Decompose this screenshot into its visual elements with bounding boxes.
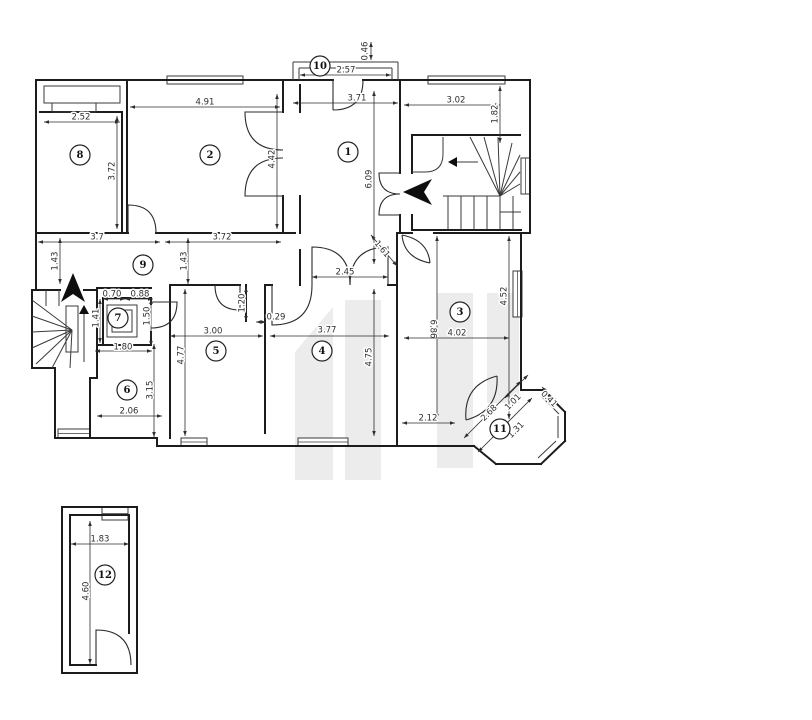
dimension-label: 1.50 xyxy=(143,307,153,326)
dimension-arrowhead xyxy=(498,86,502,91)
dimension-arrowhead xyxy=(244,287,248,292)
stair-direction-arrow xyxy=(403,179,432,205)
dimension-arrowhead xyxy=(97,414,102,418)
fixture-outline xyxy=(44,86,120,103)
dimension-label: 2.45 xyxy=(336,268,355,278)
dimension-label: 1.61 xyxy=(372,239,392,260)
watermark-shape xyxy=(345,300,381,480)
dimension-arrowhead xyxy=(38,240,43,244)
dimension-arrowhead xyxy=(258,334,263,338)
room-number: 5 xyxy=(213,346,220,357)
dimension-arrowhead xyxy=(152,344,156,349)
dimension-arrowhead xyxy=(276,240,281,244)
stair-tread xyxy=(470,137,500,196)
dimension-arrowhead xyxy=(275,105,280,109)
dimension-label: 3.02 xyxy=(447,96,466,106)
dimension-arrowhead xyxy=(386,73,391,77)
dimension-arrowhead xyxy=(312,275,317,279)
dimension-arrowhead xyxy=(244,316,248,321)
dimension-label: 3.7 xyxy=(90,233,104,243)
dimension-label: 0.29 xyxy=(267,313,286,323)
dimension-label: 2.57 xyxy=(337,66,356,76)
dimension-label: 2.52 xyxy=(72,113,91,123)
stair-tread xyxy=(484,137,500,196)
dimension-arrowhead xyxy=(275,94,279,99)
dimension-arrowhead xyxy=(155,240,160,244)
dimension-label: 4.02 xyxy=(448,329,467,339)
room-number: 9 xyxy=(140,260,147,271)
stair-direction-arrow xyxy=(79,305,89,314)
dimension-arrowhead xyxy=(393,101,398,105)
room-number: 3 xyxy=(457,307,464,318)
dimension-arrowhead xyxy=(256,320,261,324)
dimension-arrowhead xyxy=(372,91,376,96)
dimension-arrowhead xyxy=(115,116,119,121)
dimension-label: 1.82 xyxy=(491,105,501,124)
room-number: 7 xyxy=(115,313,122,324)
dimension-label: 3.00 xyxy=(204,327,223,337)
stair-curb xyxy=(412,137,443,172)
dimension-arrowhead xyxy=(270,334,275,338)
dimension-arrowhead xyxy=(88,659,92,664)
dimension-label: 4.60 xyxy=(82,582,92,601)
dimension-label: 2.06 xyxy=(120,407,139,417)
dimension-arrowhead xyxy=(404,103,409,107)
dimension-arrowhead xyxy=(152,432,156,437)
dimension-arrowhead xyxy=(372,259,376,264)
dimension-arrowhead xyxy=(130,105,135,109)
dimension-label: 1.43 xyxy=(51,252,61,271)
dimension-label: 4.52 xyxy=(500,287,510,306)
dimension-arrowhead xyxy=(58,238,62,243)
dimension-label: 0.70 xyxy=(103,290,122,300)
room-number: 4 xyxy=(319,346,326,357)
floor-plan-svg: 2.523.724.914.420.462.573.713.021.826.09… xyxy=(0,0,812,720)
dimension-label: 0.88 xyxy=(131,290,150,300)
dimension-arrowhead xyxy=(183,289,187,294)
floor-plan-page: 2.523.724.914.420.462.573.713.021.826.09… xyxy=(0,0,812,720)
door-swing-arc xyxy=(379,173,400,194)
dimension-arrowhead xyxy=(165,240,170,244)
dimension-label: 3.77 xyxy=(318,326,337,336)
room-number: 2 xyxy=(207,150,214,161)
room-number: 1 xyxy=(345,147,352,158)
dimension-arrowhead xyxy=(435,236,439,241)
stair-tread xyxy=(70,330,72,368)
dimension-arrowhead xyxy=(384,334,389,338)
dimension-label: 0.46 xyxy=(361,42,371,61)
dimension-label: 3.15 xyxy=(146,381,156,400)
dimension-arrowhead xyxy=(115,224,119,229)
door-swing-arc xyxy=(96,630,131,665)
door-swing-arc xyxy=(215,285,240,310)
fixture-outline xyxy=(52,103,96,112)
dimension-label: 1.80 xyxy=(114,343,133,353)
dimension-arrowhead xyxy=(88,521,92,526)
dimension-label: 1.83 xyxy=(91,535,110,545)
dimension-label: 1.41 xyxy=(92,309,102,328)
dimension-label: 3.72 xyxy=(213,233,232,243)
dimension-arrowhead xyxy=(44,120,49,124)
stair-tread xyxy=(538,441,556,458)
dimension-arrowhead xyxy=(98,299,102,304)
dimension-label: 3.72 xyxy=(108,162,118,181)
dimension-arrowhead xyxy=(372,289,376,294)
room-number: 8 xyxy=(77,150,84,161)
dimension-label: 3.71 xyxy=(348,94,367,104)
dimension-arrowhead xyxy=(507,236,511,241)
dimension-label: 6.09 xyxy=(365,170,375,189)
door-swing-arc xyxy=(128,205,156,233)
dimension-arrowhead xyxy=(58,279,62,284)
dimension-arrowhead xyxy=(404,336,409,340)
dimension-label: 6.86 xyxy=(428,320,438,339)
dimension-label: 0.41 xyxy=(538,389,558,409)
dimension-arrowhead xyxy=(498,138,502,143)
dimension-arrowhead xyxy=(383,275,388,279)
dimension-arrowhead xyxy=(98,338,102,343)
room-number: 11 xyxy=(493,424,507,435)
dimension-arrowhead xyxy=(183,431,187,436)
dimension-label: 4.75 xyxy=(365,348,375,367)
dimension-arrowhead xyxy=(186,238,190,243)
dimension-arrowhead xyxy=(71,542,76,546)
stair-direction-arrow xyxy=(448,157,457,167)
stair-tread xyxy=(52,330,72,368)
dimension-label: 1.43 xyxy=(180,252,190,271)
dimension-label: 4.42 xyxy=(268,150,278,169)
dimension-arrowhead xyxy=(147,349,152,353)
dimension-arrowhead xyxy=(300,73,305,77)
dimension-label: 4.77 xyxy=(177,346,187,365)
dimension-arrowhead xyxy=(293,101,298,105)
room-number: 10 xyxy=(313,61,327,72)
dimension-label: 2.12 xyxy=(419,414,438,424)
door-swing-arc xyxy=(151,302,177,328)
dimension-arrowhead xyxy=(186,279,190,284)
door-swing-arc xyxy=(379,194,400,215)
dimension-label: 4.91 xyxy=(196,98,215,108)
stair-tread xyxy=(498,137,500,196)
room-number: 12 xyxy=(98,570,112,581)
dimension-arrowhead xyxy=(157,414,162,418)
dimension-arrowhead xyxy=(402,421,407,425)
stair-tread xyxy=(36,330,72,364)
dimension-arrowhead xyxy=(507,414,511,419)
dimension-label: 1.20 xyxy=(238,294,248,313)
door-swing-arc xyxy=(312,247,350,285)
stair-direction-arrow xyxy=(61,273,85,302)
room-number: 6 xyxy=(124,385,131,396)
wall-segment xyxy=(474,446,496,464)
watermark-layer xyxy=(295,293,519,480)
dimension-arrowhead xyxy=(275,224,279,229)
